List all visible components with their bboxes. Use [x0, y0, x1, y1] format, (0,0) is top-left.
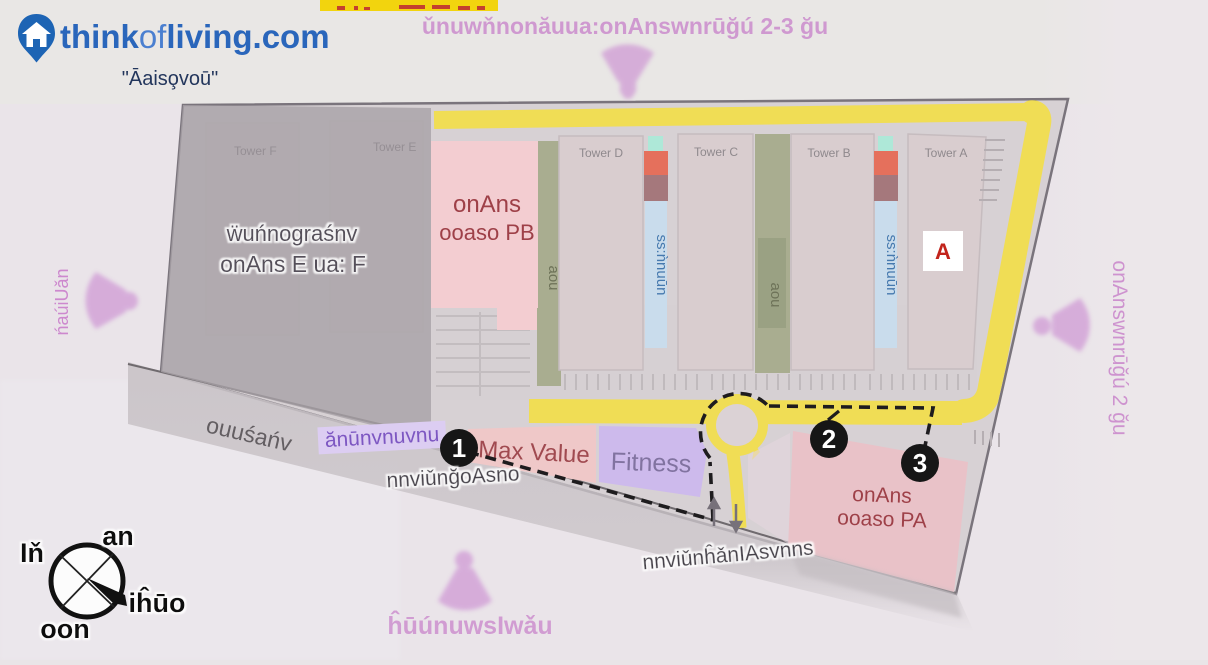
svg-text:ooaso PA: ooaso PA — [837, 506, 927, 532]
svg-text:onAnswnrūğú 2 ğu: onAnswnrūğú 2 ğu — [1108, 260, 1131, 435]
svg-text:Fitness: Fitness — [610, 448, 692, 479]
svg-text:2: 2 — [822, 424, 836, 454]
svg-text:Tower C: Tower C — [694, 145, 738, 159]
svg-text:1: 1 — [452, 433, 466, 463]
svg-text:ss:ǹnuūn: ss:ǹnuūn — [883, 235, 900, 296]
svg-text:iĥūo: iĥūo — [129, 586, 186, 618]
svg-text:Tower D: Tower D — [579, 146, 623, 160]
svg-text:onAns: onAns — [852, 483, 912, 508]
svg-text:ooaso PB: ooaso PB — [439, 220, 534, 245]
svg-text:thinkofliving.com: thinkofliving.com — [60, 18, 330, 55]
svg-text:ss:ǹnuūn: ss:ǹnuūn — [653, 235, 670, 296]
svg-text:ǔnuwňnonăuua:onAnswnrūğú 2-3 ğ: ǔnuwňnonăuua:onAnswnrūğú 2-3 ğu — [422, 13, 828, 39]
svg-text:ńaúiUǎn: ńaúiUǎn — [52, 268, 72, 335]
svg-text:ĥūúnuwsIwǎu: ĥūúnuwsIwǎu — [387, 609, 552, 640]
svg-text:3: 3 — [913, 448, 927, 478]
svg-text:Tower A: Tower A — [925, 146, 968, 160]
svg-text:onAns E ua: F: onAns E ua: F — [220, 251, 366, 277]
svg-text:A: A — [935, 239, 951, 264]
svg-text:Tower F: Tower F — [234, 144, 277, 158]
svg-text:an: an — [102, 521, 134, 551]
svg-text:aou: aou — [767, 282, 784, 307]
svg-text:Tower E: Tower E — [373, 140, 416, 154]
svg-text:Iň: Iň — [20, 538, 44, 568]
svg-text:onAns: onAns — [453, 191, 521, 218]
svg-text:Tower B: Tower B — [807, 146, 850, 160]
svg-text:"Āaiso̧voū": "Āaiso̧voū" — [122, 67, 218, 90]
svg-text:ẅuńnograśnv: ẅuńnograśnv — [226, 221, 358, 246]
svg-text:oon: oon — [40, 614, 89, 644]
